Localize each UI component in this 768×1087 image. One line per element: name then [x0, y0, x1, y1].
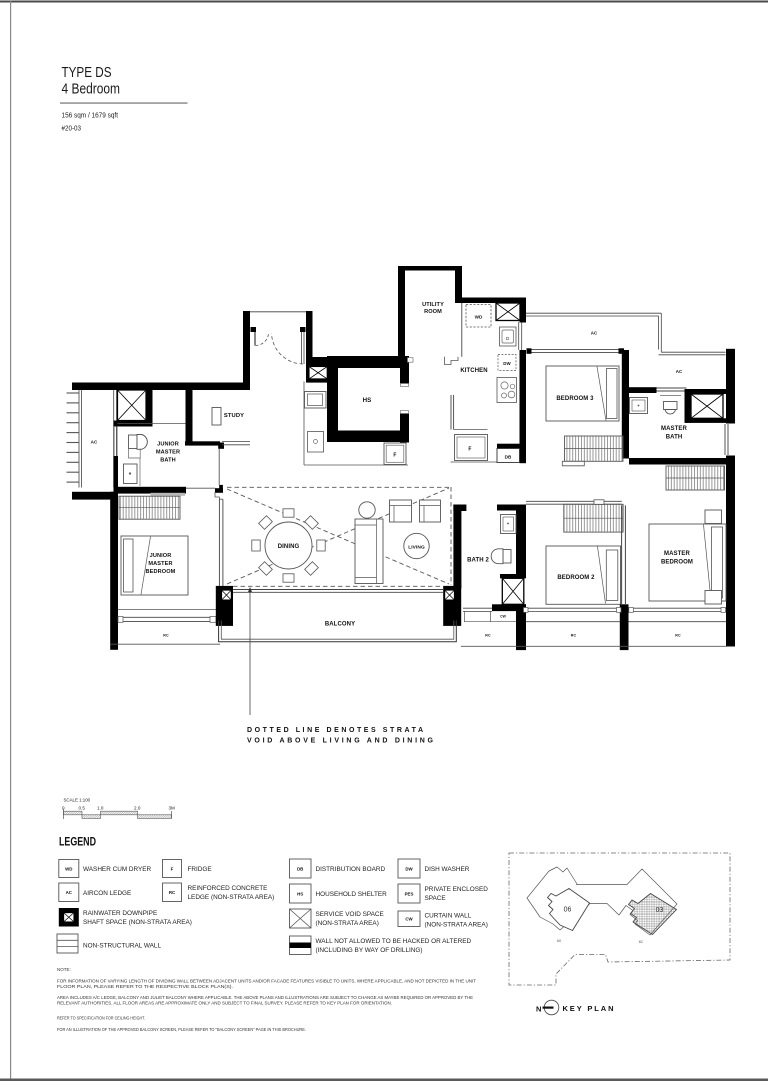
svg-text:JUNIOR: JUNIOR	[157, 442, 179, 448]
svg-text:WD: WD	[65, 866, 72, 871]
svg-text:WALL NOT ALLOWED TO BE HACKED: WALL NOT ALLOWED TO BE HACKED OR ALTERED	[316, 938, 472, 945]
svg-text:F: F	[468, 447, 471, 453]
svg-text:0.5: 0.5	[79, 806, 86, 811]
svg-text:6C: 6C	[639, 940, 644, 944]
svg-text:DB: DB	[297, 866, 303, 871]
svg-text:PRIVATE ENCLOSED: PRIVATE ENCLOSED	[425, 886, 489, 893]
svg-text:RC: RC	[163, 634, 169, 638]
svg-text:WD: WD	[475, 315, 483, 320]
svg-text:FRIDGE: FRIDGE	[188, 866, 212, 873]
svg-text:HOUSEHOLD SHELTER: HOUSEHOLD SHELTER	[316, 891, 388, 898]
svg-text:REINFORCED CONCRETE: REINFORCED CONCRETE	[188, 885, 268, 892]
svg-text:RAINWATER DOWNPIPE: RAINWATER DOWNPIPE	[83, 910, 157, 917]
svg-text:RELEVANT AUTHORITIES. ALL FLOO: RELEVANT AUTHORITIES. ALL FLOOR AREAS AR…	[57, 1001, 392, 1006]
svg-text:4 Bedroom: 4 Bedroom	[62, 82, 121, 98]
svg-text:RC: RC	[675, 634, 681, 638]
svg-text:SPACE: SPACE	[425, 895, 446, 902]
svg-text:(NON-STRATA AREA): (NON-STRATA AREA)	[316, 920, 379, 927]
svg-text:BALCONY: BALCONY	[325, 622, 355, 628]
svg-text:DISH WASHER: DISH WASHER	[425, 866, 470, 873]
svg-text:1.0: 1.0	[97, 806, 104, 811]
svg-text:BATH: BATH	[666, 435, 683, 441]
svg-text:DINING: DINING	[278, 544, 300, 550]
svg-text:DW: DW	[405, 866, 413, 871]
svg-text:STUDY: STUDY	[224, 413, 244, 419]
svg-text:HS: HS	[363, 397, 372, 404]
svg-text:LIVING: LIVING	[408, 545, 425, 551]
svg-text:RC: RC	[169, 890, 176, 895]
svg-text:DISTRIBUTION BOARD: DISTRIBUTION BOARD	[316, 866, 386, 873]
svg-text:KITCHEN: KITCHEN	[460, 368, 487, 374]
svg-text:BATH 2: BATH 2	[467, 558, 489, 564]
svg-text:156 sqm / 1679 sqft: 156 sqm / 1679 sqft	[62, 111, 119, 120]
svg-text:#20-03: #20-03	[62, 124, 82, 133]
svg-text:DB: DB	[505, 455, 512, 460]
svg-text:JUNIOR: JUNIOR	[150, 553, 172, 559]
svg-text:MASTER: MASTER	[664, 551, 690, 557]
svg-text:AC: AC	[91, 440, 98, 445]
svg-text:HS: HS	[297, 892, 303, 897]
svg-text:DW: DW	[503, 361, 511, 366]
svg-text:(NON-STRATA AREA): (NON-STRATA AREA)	[425, 922, 488, 929]
svg-text:RC: RC	[571, 634, 577, 638]
svg-text:REFER TO SPECIFICATION FOR CEI: REFER TO SPECIFICATION FOR CEILING HEIGH…	[57, 1016, 145, 1021]
svg-text:SCALE 1:100: SCALE 1:100	[64, 798, 91, 803]
svg-text:F: F	[393, 453, 396, 459]
svg-text:BEDROOM 3: BEDROOM 3	[556, 396, 594, 402]
svg-text:RC: RC	[485, 634, 491, 638]
svg-text:N: N	[536, 1005, 541, 1014]
svg-text:AC: AC	[676, 369, 683, 374]
svg-text:DOTTED LINE DENOTES STRATA: DOTTED LINE DENOTES STRATA	[247, 727, 423, 734]
svg-text:MASTER: MASTER	[156, 450, 180, 456]
svg-text:CURTAIN WALL: CURTAIN WALL	[425, 913, 472, 920]
svg-text:CW: CW	[405, 917, 413, 922]
svg-text:AC: AC	[591, 331, 598, 336]
svg-text:NON-STRUCTURAL WALL: NON-STRUCTURAL WALL	[83, 943, 161, 950]
svg-text:AC: AC	[66, 890, 73, 895]
svg-text:BEDROOM 2: BEDROOM 2	[557, 575, 595, 581]
svg-text:KEY PLAN: KEY PLAN	[563, 1004, 614, 1013]
svg-text:AREA INCLUDES A/C LEDGE, BALCO: AREA INCLUDES A/C LEDGE, BALCONY AND JUL…	[57, 995, 473, 1000]
svg-text:BEDROOM: BEDROOM	[661, 560, 693, 566]
svg-text:MASTER: MASTER	[661, 426, 687, 432]
svg-text:ROOM: ROOM	[424, 309, 442, 315]
svg-text:FLOOR PLAN, PLEASE REFER TO TH: FLOOR PLAN, PLEASE REFER TO THE RESPECTI…	[57, 984, 233, 989]
svg-text:FOR INFORMATION OF VARYING LEN: FOR INFORMATION OF VARYING LENGTH OF DIV…	[57, 979, 476, 984]
svg-text:PES: PES	[405, 892, 414, 897]
svg-text:TYPE DS: TYPE DS	[62, 65, 112, 81]
svg-text:06: 06	[564, 907, 572, 914]
svg-text:FOR AN ILLUSTRATION OF THE APP: FOR AN ILLUSTRATION OF THE APPROVED BALC…	[57, 1027, 306, 1032]
svg-text:LEGEND: LEGEND	[59, 837, 96, 849]
svg-text:UTILITY: UTILITY	[422, 302, 444, 308]
svg-text:WASHER CUM DRYER: WASHER CUM DRYER	[83, 866, 152, 873]
svg-text:BEDROOM: BEDROOM	[146, 569, 176, 575]
svg-text:LEDGE (NON-STRATA AREA): LEDGE (NON-STRATA AREA)	[188, 894, 275, 901]
svg-text:(INCLUDING BY WAY OF DRILLING): (INCLUDING BY WAY OF DRILLING)	[316, 947, 423, 954]
svg-text:60: 60	[557, 939, 561, 943]
svg-text:2.0: 2.0	[134, 806, 141, 811]
svg-text:3M: 3M	[169, 806, 176, 811]
svg-text:F: F	[171, 866, 174, 871]
svg-text:SERVICE VOID SPACE: SERVICE VOID SPACE	[316, 911, 384, 918]
svg-text:BATH: BATH	[160, 458, 176, 464]
svg-text:03: 03	[656, 907, 664, 914]
svg-text:NOTE:: NOTE:	[57, 967, 71, 972]
svg-text:MASTER: MASTER	[148, 561, 172, 567]
svg-text:AIRCON LEDGE: AIRCON LEDGE	[83, 890, 131, 897]
svg-text:CW: CW	[500, 615, 507, 619]
svg-text:SHAFT SPACE (NON-STRATA AREA): SHAFT SPACE (NON-STRATA AREA)	[83, 919, 192, 926]
